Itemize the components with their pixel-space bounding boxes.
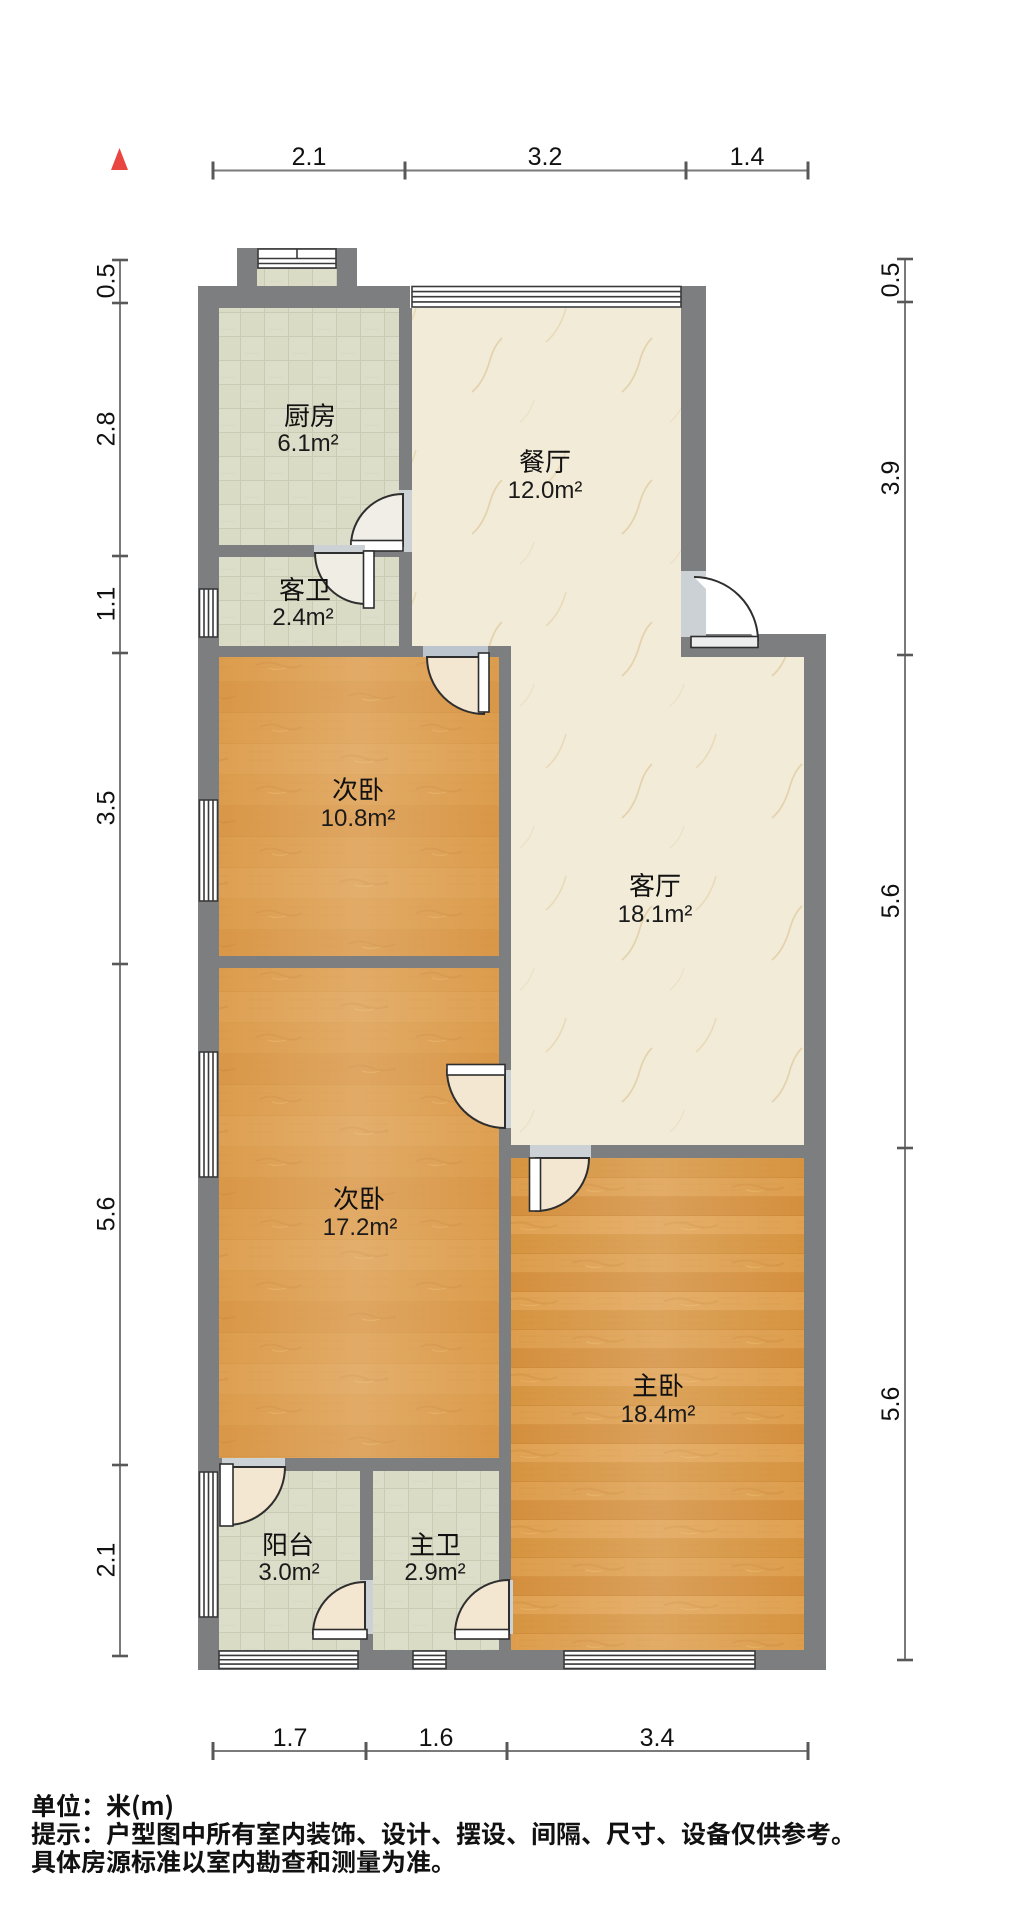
svg-text:2.9m²: 2.9m² <box>404 1559 465 1586</box>
svg-text:18.1m²: 18.1m² <box>618 901 693 928</box>
svg-text:10.8m²: 10.8m² <box>321 805 396 832</box>
svg-text:1.1: 1.1 <box>93 587 121 622</box>
svg-text:1.6: 1.6 <box>419 1724 454 1752</box>
svg-text:3.0m²: 3.0m² <box>258 1559 319 1586</box>
svg-text:1.4: 1.4 <box>730 143 765 171</box>
svg-text:5.6: 5.6 <box>877 1387 905 1422</box>
svg-text:2.1: 2.1 <box>292 143 327 171</box>
svg-text:2.4m²: 2.4m² <box>272 604 333 631</box>
svg-text:18.4m²: 18.4m² <box>621 1401 696 1428</box>
svg-text:0.5: 0.5 <box>93 264 121 299</box>
svg-text:2.1: 2.1 <box>93 1543 121 1578</box>
svg-text:3.9: 3.9 <box>877 461 905 496</box>
svg-text:3.5: 3.5 <box>93 791 121 826</box>
svg-text:5.6: 5.6 <box>93 1197 121 1232</box>
svg-text:17.2m²: 17.2m² <box>323 1214 398 1241</box>
svg-text:12.0m²: 12.0m² <box>508 477 583 504</box>
svg-text:2.8: 2.8 <box>93 412 121 447</box>
svg-text:1.7: 1.7 <box>273 1724 308 1752</box>
svg-text:3.2: 3.2 <box>528 143 563 171</box>
svg-text:6.1m²: 6.1m² <box>277 430 338 457</box>
svg-text:3.4: 3.4 <box>640 1724 675 1752</box>
svg-text:0.5: 0.5 <box>877 263 905 298</box>
svg-text:5.6: 5.6 <box>877 884 905 919</box>
